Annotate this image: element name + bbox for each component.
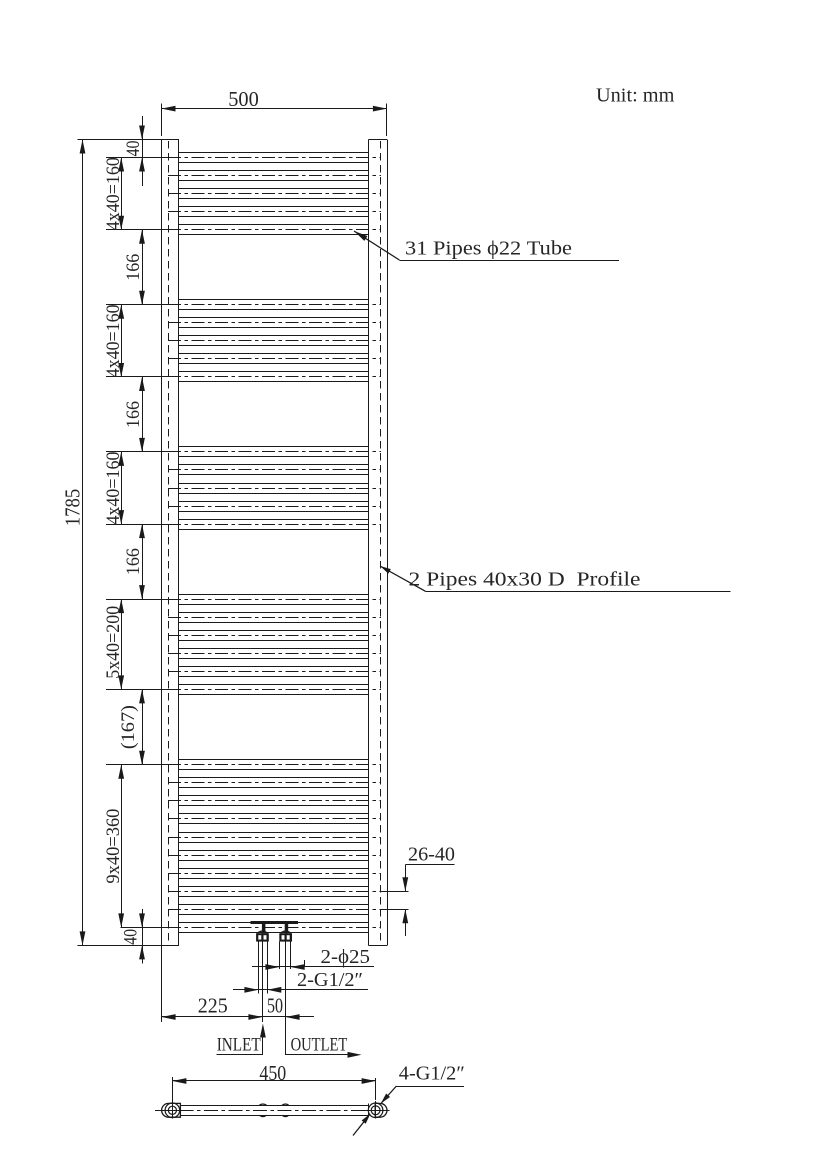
- svg-text:INLET: INLET: [217, 1034, 261, 1055]
- svg-text:5x40=200: 5x40=200: [103, 606, 124, 679]
- svg-text:166: 166: [123, 548, 144, 575]
- svg-text:OUTLET: OUTLET: [291, 1034, 348, 1055]
- svg-text:1785: 1785: [61, 489, 85, 527]
- svg-text:225: 225: [198, 994, 228, 1018]
- svg-text:500: 500: [228, 87, 259, 111]
- svg-text:4-G1/2″: 4-G1/2″: [399, 1062, 465, 1084]
- svg-text:4x40=160: 4x40=160: [103, 304, 124, 377]
- svg-text:2 Pipes 40x30 D Profile: 2 Pipes 40x30 D Profile: [409, 569, 641, 591]
- svg-text:(167): (167): [118, 705, 139, 749]
- svg-text:166: 166: [123, 401, 144, 428]
- svg-text:2-G1/2″: 2-G1/2″: [297, 969, 363, 991]
- svg-text:2-ϕ25: 2-ϕ25: [321, 946, 371, 968]
- svg-text:166: 166: [123, 254, 144, 281]
- svg-text:40: 40: [123, 141, 144, 157]
- svg-text:Unit: mm: Unit: mm: [596, 84, 675, 106]
- svg-text:4x40=160: 4x40=160: [103, 452, 124, 525]
- svg-text:4x40=160: 4x40=160: [103, 157, 124, 230]
- svg-text:50: 50: [267, 994, 283, 1018]
- svg-text:9x40=360: 9x40=360: [103, 809, 124, 884]
- svg-text:31 Pipes ϕ22 Tube: 31 Pipes ϕ22 Tube: [405, 238, 572, 260]
- svg-text:26-40: 26-40: [408, 843, 455, 865]
- svg-text:450: 450: [259, 1061, 286, 1085]
- svg-text:40: 40: [121, 929, 142, 945]
